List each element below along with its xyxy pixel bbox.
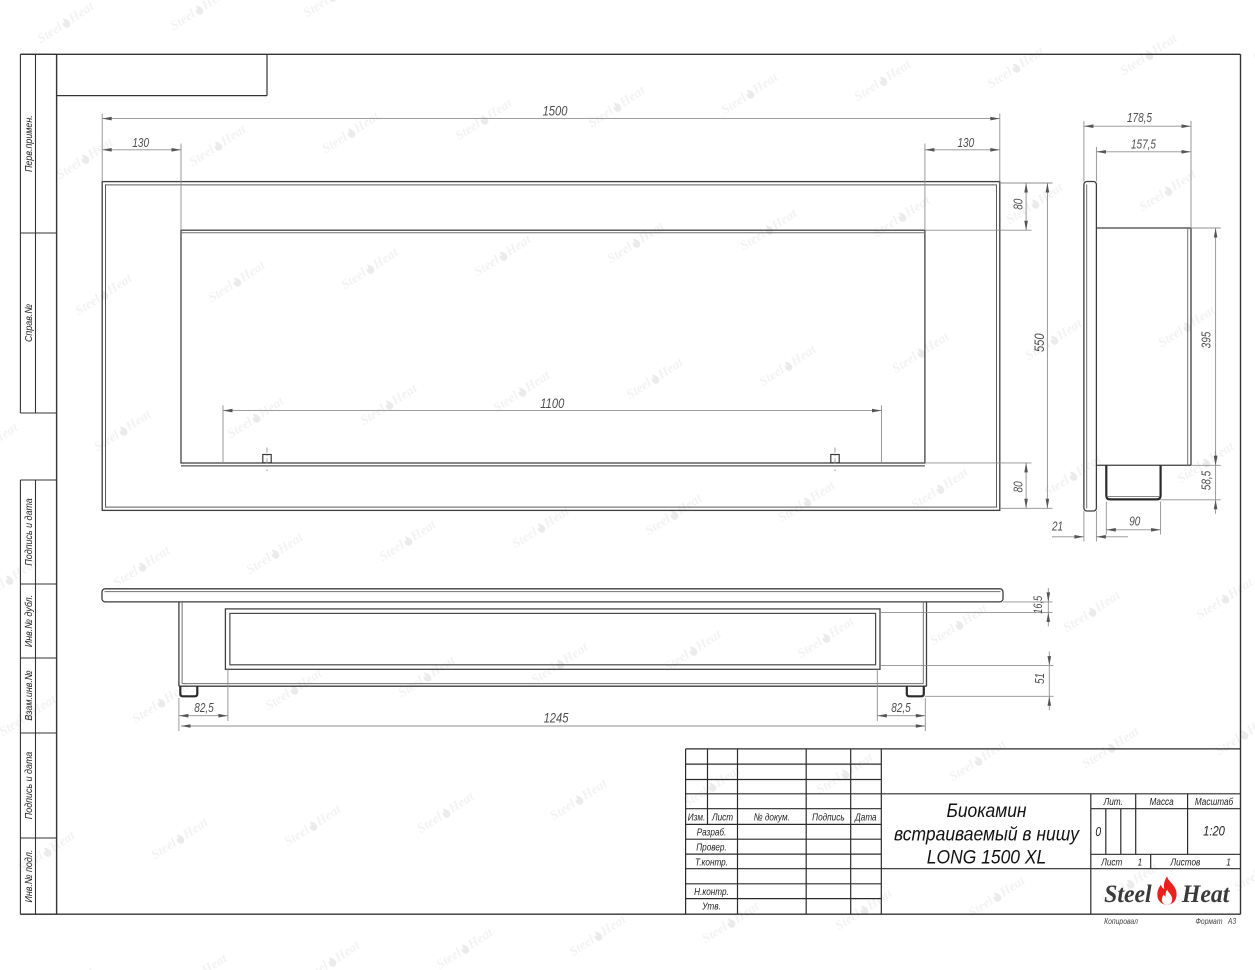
svg-text:21: 21	[1051, 521, 1063, 534]
svg-text:80: 80	[1012, 198, 1025, 210]
svg-text:0: 0	[1095, 825, 1101, 839]
svg-text:Формат: Формат	[1196, 916, 1223, 926]
svg-text:Лит.: Лит.	[1103, 795, 1123, 807]
svg-text:82,5: 82,5	[891, 702, 911, 715]
svg-text:LONG 1500 XL: LONG 1500 XL	[927, 846, 1046, 868]
svg-text:Провер.: Провер.	[696, 840, 726, 852]
svg-text:550: 550	[1032, 333, 1047, 352]
svg-text:58,5: 58,5	[1200, 470, 1213, 490]
svg-text:130: 130	[957, 137, 974, 150]
svg-text:Дата: Дата	[854, 811, 876, 823]
svg-text:Подпись: Подпись	[812, 811, 844, 823]
svg-text:Справ.№: Справ.№	[23, 304, 35, 342]
svg-text:1500: 1500	[543, 104, 568, 119]
svg-text:Изм.: Изм.	[688, 811, 705, 823]
svg-text:Листов: Листов	[1170, 855, 1201, 867]
svg-text:Подпись и дата: Подпись и дата	[23, 498, 35, 566]
svg-text:Биокамин: Биокамин	[946, 799, 1026, 821]
svg-text:Steel: Steel	[1104, 881, 1152, 909]
svg-text:90: 90	[1129, 515, 1141, 528]
svg-text:395: 395	[1201, 331, 1214, 348]
svg-text:1:20: 1:20	[1203, 824, 1225, 839]
svg-text:Разраб.: Разраб.	[697, 826, 727, 838]
svg-text:51: 51	[1034, 673, 1047, 684]
svg-text:1: 1	[1226, 855, 1231, 867]
svg-text:Копировал: Копировал	[1104, 916, 1138, 926]
svg-text:Взам.инв.№: Взам.инв.№	[23, 670, 35, 721]
svg-text:Т.контр.: Т.контр.	[695, 855, 728, 867]
svg-text:178,5: 178,5	[1127, 112, 1153, 125]
svg-text:Heat: Heat	[1181, 881, 1231, 909]
svg-text:Масштаб: Масштаб	[1195, 795, 1234, 807]
svg-text:Инв.№ подл.: Инв.№ подл.	[23, 850, 35, 903]
svg-text:Масса: Масса	[1150, 795, 1174, 807]
svg-text:Утв.: Утв.	[701, 900, 720, 912]
svg-text:А3: А3	[1227, 916, 1237, 926]
svg-text:Инв.№ дубл.: Инв.№ дубл.	[23, 595, 35, 647]
svg-text:1100: 1100	[540, 396, 564, 411]
svg-text:Н.контр.: Н.контр.	[694, 885, 729, 897]
svg-text:Подпись и дата: Подпись и дата	[23, 751, 35, 819]
svg-text:Перв.примен.: Перв.примен.	[23, 115, 35, 172]
svg-text:Лист: Лист	[711, 811, 733, 823]
svg-text:встраиваемый в нишу: встраиваемый в нишу	[894, 823, 1081, 845]
svg-text:80: 80	[1012, 481, 1025, 493]
svg-text:№ докум.: № докум.	[754, 811, 790, 823]
svg-text:157,5: 157,5	[1131, 139, 1157, 152]
svg-text:1: 1	[1138, 855, 1143, 867]
svg-text:Лист: Лист	[1100, 855, 1122, 867]
svg-text:82,5: 82,5	[194, 702, 214, 715]
svg-text:1245: 1245	[544, 710, 570, 725]
svg-text:16,5: 16,5	[1033, 596, 1045, 614]
svg-text:130: 130	[132, 137, 149, 150]
